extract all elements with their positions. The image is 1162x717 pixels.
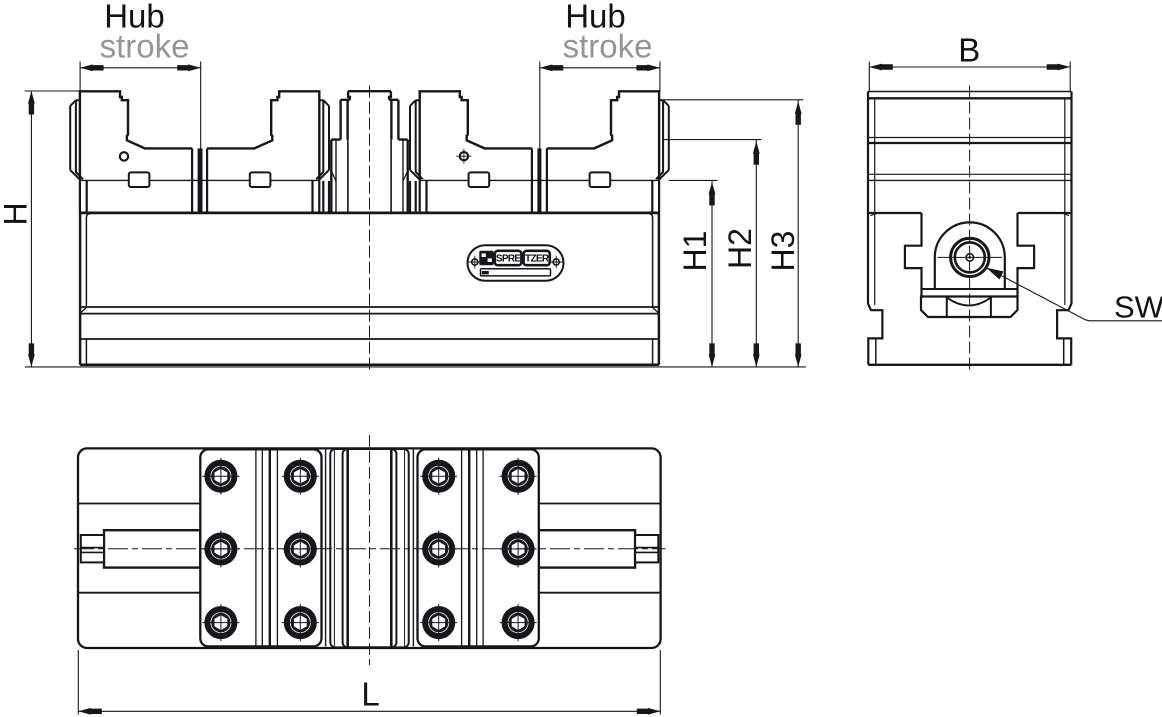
svg-text:stroke: stroke: [100, 28, 190, 65]
svg-text:L: L: [361, 676, 379, 713]
svg-text:H2: H2: [722, 228, 758, 269]
svg-text:B: B: [958, 32, 980, 69]
svg-text:SW: SW: [1114, 290, 1162, 325]
svg-text:H1: H1: [677, 231, 713, 272]
svg-text:stroke: stroke: [563, 28, 653, 65]
svg-text:TZER: TZER: [525, 254, 550, 265]
svg-text:H3: H3: [765, 231, 801, 272]
svg-text:H: H: [0, 202, 33, 225]
svg-text:SPRE: SPRE: [496, 254, 521, 265]
